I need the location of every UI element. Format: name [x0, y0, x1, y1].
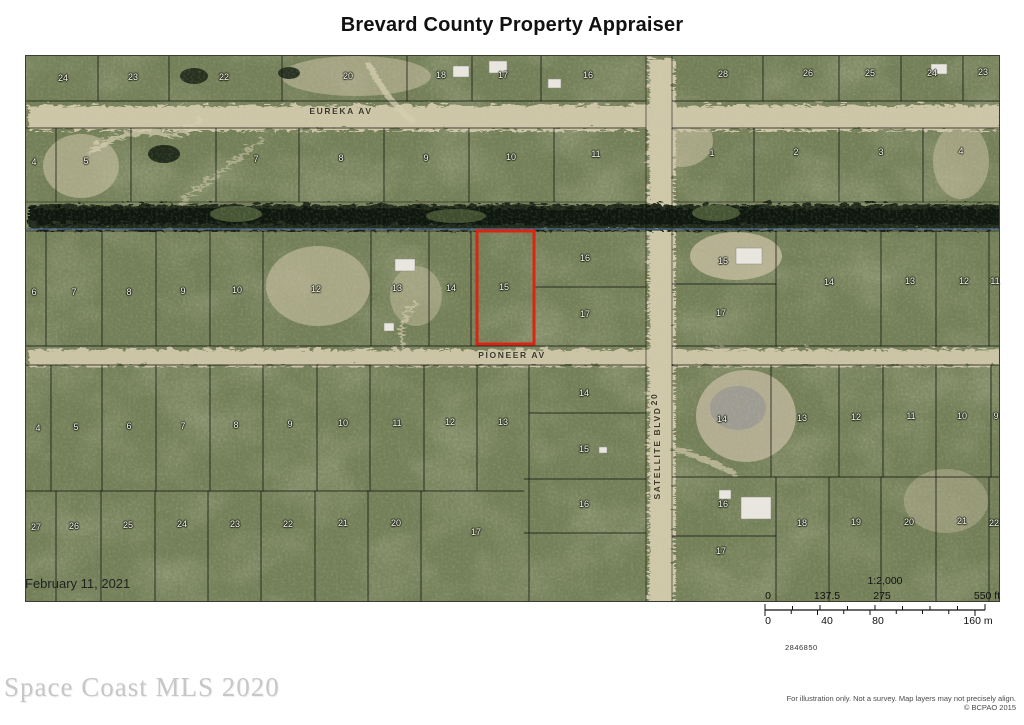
scale-tick-label: 0	[765, 615, 771, 627]
map-date: February 11, 2021	[25, 576, 130, 591]
scale-tick-label: 137.5	[814, 590, 840, 602]
scale-tick-label: 550 ft	[974, 590, 1000, 602]
map-number: 2846850	[785, 643, 818, 652]
scale-ratio: 1:2,000	[760, 575, 1010, 587]
scale-tick-label: 275	[873, 590, 891, 602]
page-title: Brevard County Property Appraiser	[0, 14, 1024, 37]
watermark: Space Coast MLS 2020	[4, 672, 280, 703]
property-appraiser-report: Brevard County Property Appraiser	[0, 0, 1024, 725]
disclaimer-line1: For illustration only. Not a survey. Map…	[787, 694, 1016, 703]
scale-tick-label: 40	[821, 615, 833, 627]
scale-tick-label: 80	[872, 615, 884, 627]
aerial-parcel-map: 2423222018171628262524234578910111234678…	[25, 55, 1000, 602]
disclaimer: For illustration only. Not a survey. Map…	[787, 694, 1016, 713]
disclaimer-line2: © BCPAO 2015	[787, 703, 1016, 712]
scale-bar: 1:2,000 0137.5275550 ft 04080160 m	[760, 575, 1022, 653]
scale-tick-label: 160 m	[963, 615, 992, 627]
aerial-imagery	[26, 56, 999, 601]
scale-tick-label: 0	[765, 590, 771, 602]
